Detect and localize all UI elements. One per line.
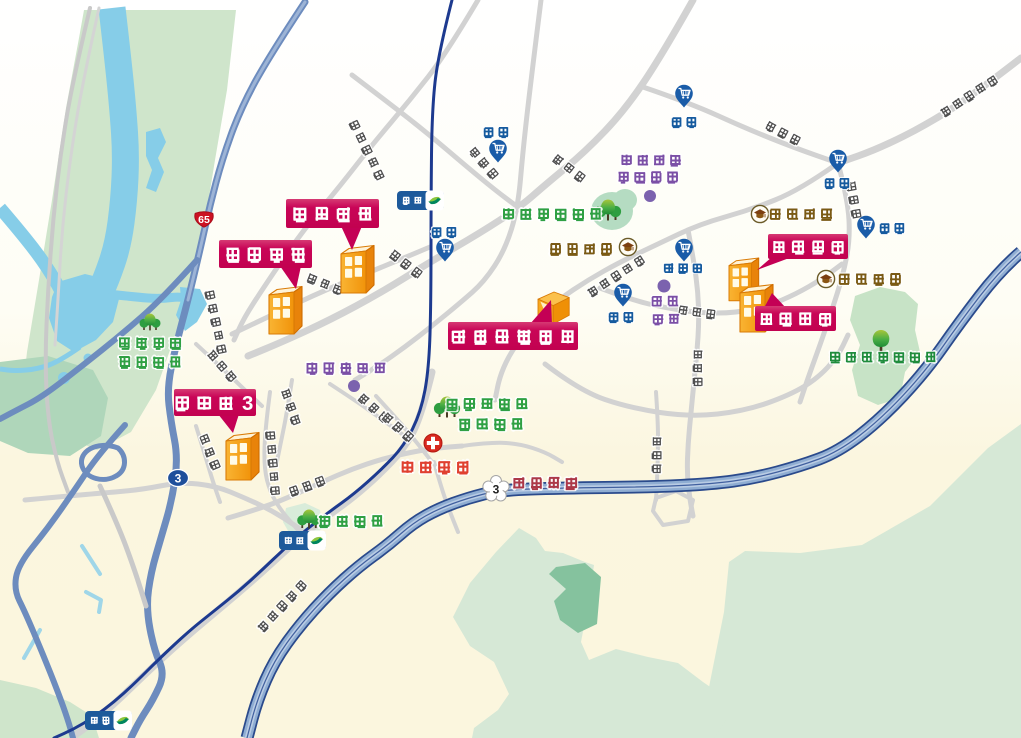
svg-text:3: 3	[493, 482, 500, 496]
svg-text:3: 3	[175, 471, 182, 485]
svg-text:65: 65	[198, 214, 210, 226]
svg-text:3: 3	[242, 393, 253, 415]
